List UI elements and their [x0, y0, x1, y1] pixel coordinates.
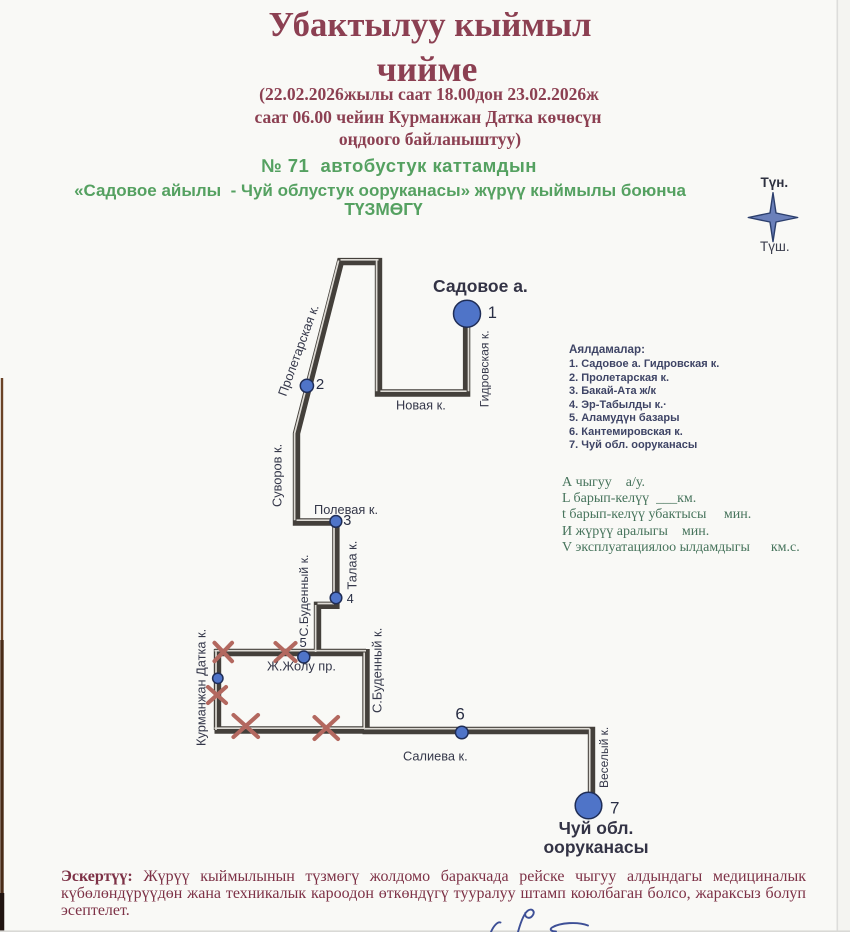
svg-text:Курманжан Датка к.: Курманжан Датка к. — [194, 629, 209, 746]
svg-text:Садовое а.: Садовое а. — [433, 276, 528, 296]
svg-text:Суворов к.: Суворов к. — [270, 444, 285, 507]
svg-text:С.Буденный к.: С.Буденный к. — [370, 628, 385, 713]
svg-text:Түш.: Түш. — [760, 239, 790, 254]
svg-text:Веселый к.: Веселый к. — [597, 727, 611, 788]
svg-text:ооруканасы: ооруканасы — [543, 837, 648, 857]
svg-text:Чуй обл.: Чуй обл. — [559, 818, 634, 838]
svg-text:1: 1 — [488, 304, 497, 322]
svg-text:2: 2 — [316, 376, 324, 393]
svg-text:С.Буденный к.: С.Буденный к. — [297, 555, 311, 637]
svg-text:Ж.Жолу пр.: Ж.Жолу пр. — [267, 658, 336, 673]
svg-text:6: 6 — [455, 704, 464, 723]
svg-text:7: 7 — [610, 798, 619, 817]
svg-text:Салиева к.: Салиева к. — [403, 749, 468, 764]
svg-text:Новая к.: Новая к. — [396, 398, 446, 413]
svg-text:Талаа к.: Талаа к. — [345, 541, 360, 590]
svg-text:5: 5 — [300, 635, 307, 650]
svg-text:Полевая к.: Полевая к. — [314, 502, 378, 517]
svg-text:4: 4 — [347, 592, 354, 606]
svg-text:Түн.: Түн. — [761, 175, 789, 190]
svg-text:Гидровская к.: Гидровская к. — [478, 330, 492, 407]
